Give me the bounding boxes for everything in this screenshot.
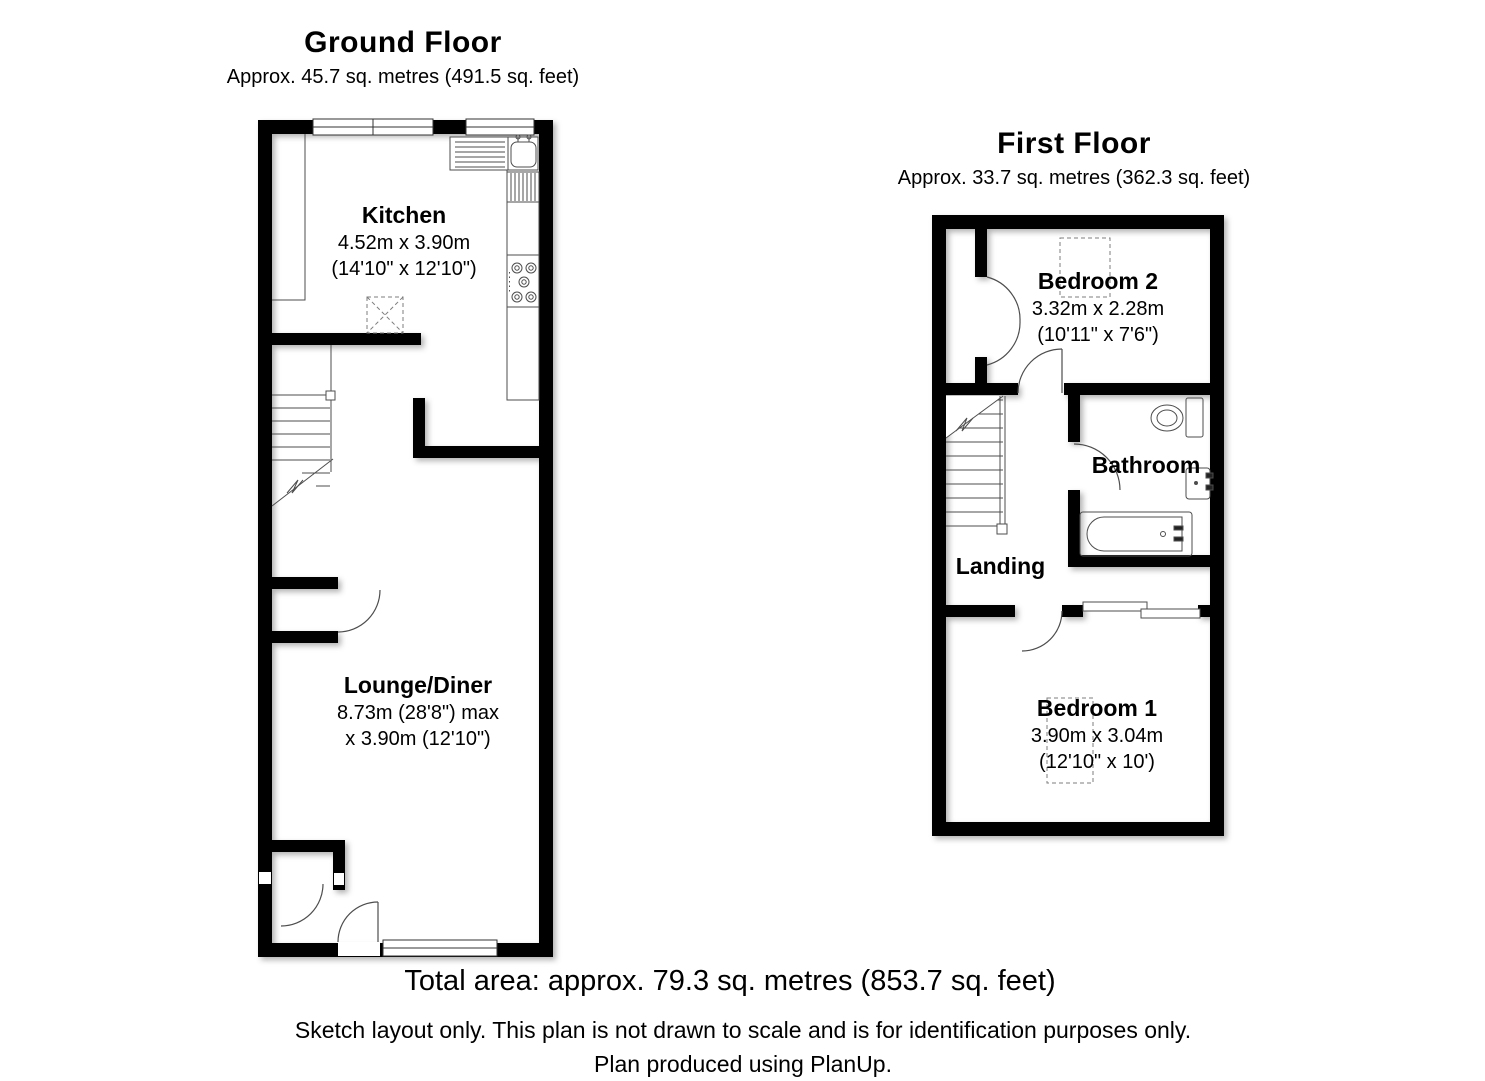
bedroom1-name: Bedroom 1 [947, 693, 1247, 723]
lounge-diner-dims-imperial: x 3.90m (12'10") [268, 726, 568, 752]
hall-door-arc [281, 884, 323, 926]
first-floor-title: First Floor [874, 127, 1274, 161]
bedroom1-dims-metric: 3.90m x 3.04m [947, 723, 1247, 749]
footer-disclaimer: Sketch layout only. This plan is not dra… [143, 1013, 1343, 1081]
wardrobe-sliding-doors [1083, 602, 1200, 618]
bathtub [1080, 512, 1192, 556]
ground-floor-header: Ground Floor Approx. 45.7 sq. metres (49… [203, 26, 603, 89]
front-door-gap [338, 942, 380, 956]
lounge-door-arc [338, 590, 380, 632]
kitchen-dims-imperial: (14'10" x 12'10") [254, 256, 554, 282]
bathroom-label: Bathroom [1046, 450, 1246, 480]
counter-segment-2 [507, 307, 539, 400]
lounge-diner-name: Lounge/Diner [268, 670, 568, 700]
total-area-line: Total area: approx. 79.3 sq. metres (853… [230, 965, 1230, 998]
credit-line: Plan produced using PlanUp. [143, 1047, 1343, 1081]
bedroom1-door-arc [1022, 611, 1062, 651]
bedroom2-dims-metric: 3.32m x 2.28m [948, 296, 1248, 322]
landing-name: Landing [928, 551, 1073, 581]
hall-door-jamb [259, 872, 271, 884]
lounge-window [383, 940, 497, 956]
kitchen-name: Kitchen [254, 200, 554, 230]
kitchen-label: Kitchen 4.52m x 3.90m (14'10" x 12'10") [254, 200, 554, 282]
bedroom1-label: Bedroom 1 3.90m x 3.04m (12'10" x 10') [947, 693, 1247, 775]
lounge-diner-dims-metric: 8.73m (28'8") max [268, 700, 568, 726]
sink-window [466, 119, 534, 135]
ground-floor-area: Approx. 45.7 sq. metres (491.5 sq. feet) [203, 66, 603, 89]
kitchen-dims-metric: 4.52m x 3.90m [254, 230, 554, 256]
chimney-dashed-box [367, 297, 403, 333]
sink-unit [450, 135, 538, 170]
first-floor-header: First Floor Approx. 33.7 sq. metres (362… [874, 127, 1274, 190]
ground-floor-stairs [272, 345, 335, 506]
landing-label: Landing [928, 551, 1073, 581]
bedroom1-dims-imperial: (12'10" x 10') [947, 749, 1247, 775]
kitchen-window [313, 119, 433, 135]
bedroom2-dims-imperial: (10'11" x 7'6") [948, 322, 1248, 348]
drainer-rack [507, 172, 539, 202]
entrance-wall-notch [334, 873, 344, 885]
first-floor-area: Approx. 33.7 sq. metres (362.3 sq. feet) [874, 167, 1274, 190]
bathroom-name: Bathroom [1046, 450, 1246, 480]
front-door-arc [338, 902, 378, 942]
toilet [1151, 398, 1203, 437]
first-floor-stairs [946, 396, 1007, 534]
bedroom2-door-arc [1018, 349, 1062, 393]
disclaimer-line: Sketch layout only. This plan is not dra… [143, 1013, 1343, 1047]
bedroom2-name: Bedroom 2 [948, 266, 1248, 296]
lounge-diner-label: Lounge/Diner 8.73m (28'8") max x 3.90m (… [268, 670, 568, 752]
bedroom2-label: Bedroom 2 3.32m x 2.28m (10'11" x 7'6") [948, 266, 1248, 348]
ground-floor-title: Ground Floor [203, 26, 603, 60]
